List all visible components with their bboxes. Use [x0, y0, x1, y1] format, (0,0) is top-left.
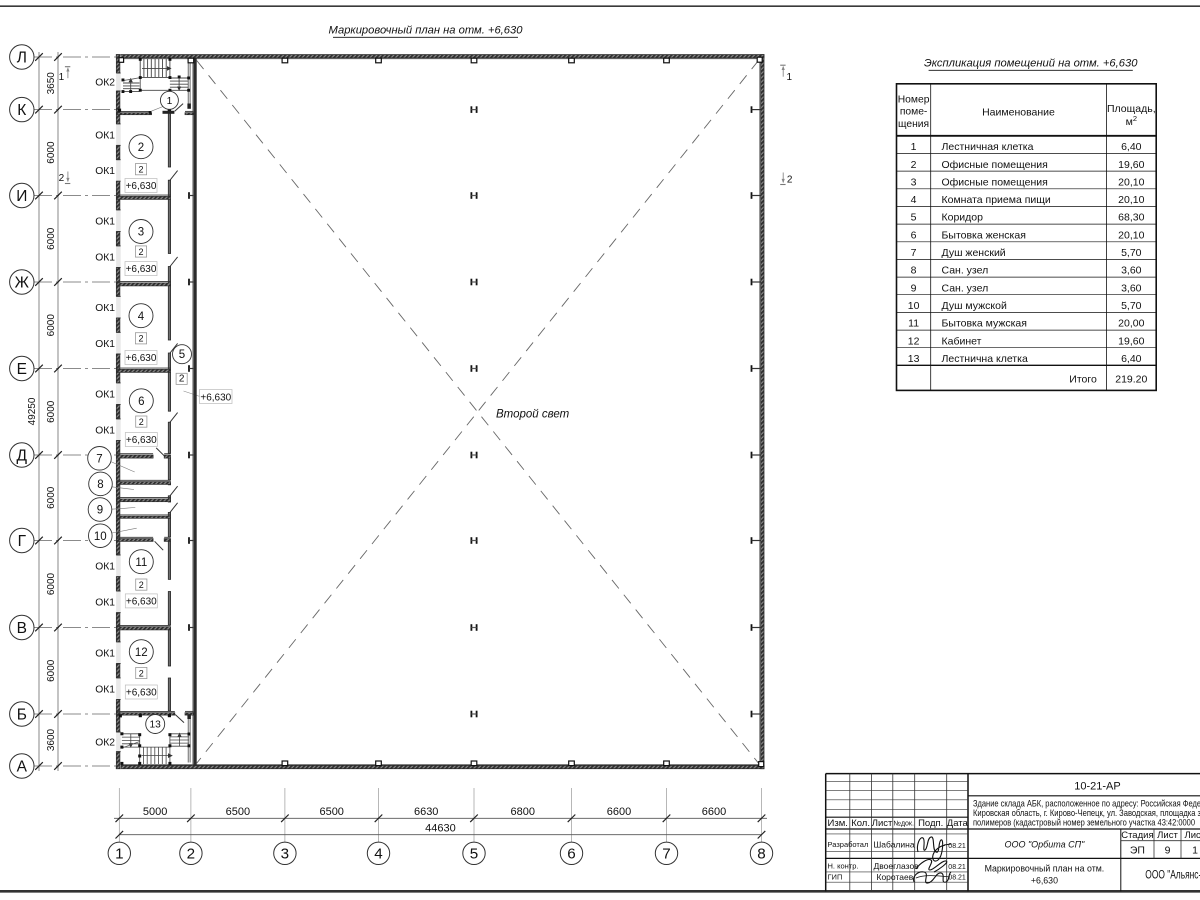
svg-text:10: 10	[94, 531, 107, 543]
svg-text:ООО "Орбита СП": ООО "Орбита СП"	[1004, 840, 1085, 850]
svg-text:ЭП: ЭП	[1130, 845, 1145, 857]
svg-text:5: 5	[911, 212, 917, 224]
svg-text:ОК1: ОК1	[95, 562, 115, 573]
svg-text:2: 2	[138, 142, 144, 154]
svg-text:Офисные помещения: Офисные помещения	[942, 176, 1048, 188]
svg-text:+6,630: +6,630	[126, 264, 157, 275]
svg-text:Коротаев: Коротаев	[877, 872, 914, 882]
svg-text:ОК1: ОК1	[95, 649, 115, 660]
svg-text:Душ женский: Душ женский	[942, 247, 1006, 259]
svg-text:Второй свет: Второй свет	[496, 409, 570, 421]
svg-text:Н. контр.: Н. контр.	[828, 862, 859, 871]
svg-text:Б: Б	[17, 706, 27, 723]
svg-text:Итого: Итого	[1069, 373, 1097, 385]
svg-text:полимеров (кадастровый номер з: полимеров (кадастровый номер земельного …	[973, 818, 1195, 828]
svg-text:13: 13	[908, 353, 920, 365]
svg-text:5,70: 5,70	[1121, 300, 1142, 312]
svg-text:6600: 6600	[702, 806, 726, 818]
svg-text:219.20: 219.20	[1115, 373, 1147, 385]
svg-text:+6,630: +6,630	[1031, 876, 1058, 886]
svg-text:1: 1	[911, 141, 917, 153]
svg-text:6: 6	[138, 396, 144, 408]
svg-text:Лестнична клетка: Лестнична клетка	[942, 353, 1028, 365]
svg-text:ОК1: ОК1	[95, 685, 115, 696]
svg-text:20,10: 20,10	[1118, 229, 1144, 241]
svg-text:№док.: №док.	[893, 820, 914, 827]
svg-text:12: 12	[908, 335, 920, 347]
svg-text:Маркировочный план на отм.: Маркировочный план на отм.	[985, 864, 1105, 874]
svg-text:Сан. узел: Сан. узел	[942, 265, 989, 277]
svg-text:6000: 6000	[46, 659, 57, 682]
svg-text:12: 12	[135, 647, 148, 659]
svg-text:Маркировочный план на отм. +6,: Маркировочный план на отм. +6,630	[329, 25, 524, 37]
svg-text:+6,630: +6,630	[126, 435, 157, 446]
svg-text:1: 1	[1192, 845, 1198, 857]
svg-text:Л: Л	[17, 49, 27, 66]
svg-text:44630: 44630	[425, 822, 456, 834]
svg-text:Двоеглазов: Двоеглазов	[874, 861, 920, 871]
svg-text:2: 2	[787, 175, 793, 186]
svg-text:Г: Г	[18, 533, 27, 550]
svg-text:8: 8	[911, 265, 917, 277]
svg-text:8: 8	[97, 479, 103, 491]
svg-text:Коридор: Коридор	[942, 212, 984, 224]
svg-text:ОК1: ОК1	[95, 426, 115, 437]
svg-text:Офисные помещения: Офисные помещения	[942, 159, 1048, 171]
svg-text:9: 9	[97, 505, 103, 517]
svg-text:3: 3	[138, 227, 144, 239]
svg-text:08.21: 08.21	[948, 875, 966, 882]
svg-text:49250: 49250	[27, 397, 38, 425]
svg-text:11: 11	[135, 557, 147, 569]
svg-text:ОК1: ОК1	[95, 253, 115, 264]
svg-text:8: 8	[757, 846, 765, 863]
svg-text:ОК1: ОК1	[95, 303, 115, 314]
svg-text:+6,630: +6,630	[126, 688, 157, 699]
svg-text:Бытовка женская: Бытовка женская	[942, 229, 1026, 241]
svg-text:3600: 3600	[46, 728, 57, 751]
svg-text:5,70: 5,70	[1121, 247, 1142, 259]
svg-text:3,60: 3,60	[1121, 282, 1142, 294]
svg-text:Лестничная клетка: Лестничная клетка	[942, 141, 1034, 153]
svg-text:5: 5	[179, 349, 185, 361]
svg-text:6500: 6500	[319, 806, 343, 818]
svg-text:Номер: Номер	[898, 94, 930, 105]
svg-text:20,00: 20,00	[1118, 318, 1144, 330]
svg-text:Экспликация помещений на отм.: Экспликация помещений на отм. +6,630	[924, 58, 1138, 70]
svg-text:6000: 6000	[46, 227, 57, 250]
svg-text:ООО "Альянс-П: ООО "Альянс-П	[1145, 870, 1200, 882]
svg-text:20,10: 20,10	[1118, 176, 1144, 188]
svg-text:3: 3	[281, 846, 289, 863]
svg-text:68,30: 68,30	[1118, 212, 1144, 224]
svg-text:3650: 3650	[46, 72, 57, 95]
svg-text:Здание склада АБК, расположенн: Здание склада АБК, расположенное по адре…	[973, 799, 1200, 809]
svg-text:Д: Д	[17, 447, 28, 464]
svg-text:ОК2: ОК2	[95, 78, 115, 89]
svg-text:Наименование: Наименование	[982, 106, 1055, 118]
svg-text:11: 11	[908, 318, 919, 330]
svg-text:1: 1	[59, 72, 65, 83]
svg-text:А: А	[17, 758, 28, 775]
svg-text:Ж: Ж	[15, 274, 30, 291]
svg-text:К: К	[17, 102, 26, 119]
svg-text:+6,630: +6,630	[200, 392, 231, 403]
svg-text:Лист: Лист	[872, 818, 893, 829]
svg-text:Кабинет: Кабинет	[942, 335, 982, 347]
svg-text:ГИП: ГИП	[828, 872, 843, 881]
svg-text:Подп.: Подп.	[918, 818, 943, 829]
svg-text:Изм.: Изм.	[828, 818, 848, 829]
svg-text:4: 4	[374, 846, 382, 863]
svg-text:Сан. узел: Сан. узел	[942, 282, 989, 294]
svg-text:Площадь,: Площадь,	[1107, 103, 1156, 115]
svg-text:19,60: 19,60	[1118, 335, 1144, 347]
svg-text:Шабалина: Шабалина	[874, 840, 915, 850]
svg-text:Дата: Дата	[947, 818, 969, 829]
svg-text:2: 2	[911, 159, 917, 171]
svg-text:1: 1	[167, 96, 173, 107]
svg-text:9: 9	[1165, 845, 1171, 857]
svg-text:19,60: 19,60	[1118, 159, 1144, 171]
svg-text:Е: Е	[17, 361, 27, 378]
svg-text:2: 2	[138, 334, 143, 344]
svg-text:6000: 6000	[46, 400, 57, 423]
svg-text:5000: 5000	[143, 806, 167, 818]
svg-text:1: 1	[787, 72, 793, 83]
svg-text:6000: 6000	[46, 141, 57, 164]
svg-text:2: 2	[139, 668, 144, 678]
svg-text:+6,630: +6,630	[126, 353, 157, 364]
svg-text:6: 6	[567, 846, 575, 863]
svg-text:7: 7	[662, 846, 670, 863]
svg-text:Бытовка мужская: Бытовка мужская	[942, 318, 1027, 330]
svg-text:6630: 6630	[414, 806, 438, 818]
svg-text:2: 2	[179, 374, 185, 385]
svg-text:Комната приема пищи: Комната приема пищи	[942, 194, 1051, 206]
svg-text:7: 7	[96, 453, 102, 465]
svg-text:Душ мужской: Душ мужской	[942, 300, 1007, 312]
svg-text:5: 5	[470, 846, 478, 863]
svg-text:щения: щения	[898, 119, 929, 130]
svg-text:6800: 6800	[511, 806, 535, 818]
svg-text:Листов: Листов	[1185, 830, 1200, 841]
svg-text:ОК1: ОК1	[95, 598, 115, 609]
svg-text:ОК1: ОК1	[95, 390, 115, 401]
svg-text:Кировская область, г. Кирово-Ч: Кировская область, г. Кирово-Чепецк, ул.…	[973, 808, 1200, 818]
svg-text:В: В	[17, 620, 27, 637]
svg-text:6: 6	[911, 229, 917, 241]
svg-text:ОК1: ОК1	[95, 339, 115, 350]
svg-text:3: 3	[911, 176, 917, 188]
svg-text:10-21-АР: 10-21-АР	[1074, 781, 1120, 793]
svg-text:ОК1: ОК1	[95, 131, 115, 142]
svg-text:6,40: 6,40	[1121, 353, 1142, 365]
svg-text:ОК1: ОК1	[95, 166, 115, 177]
svg-text:2: 2	[139, 417, 144, 427]
svg-text:Лист: Лист	[1157, 830, 1178, 841]
svg-text:7: 7	[911, 247, 917, 259]
svg-text:поме-: поме-	[900, 107, 928, 118]
svg-text:Кол.: Кол.	[851, 818, 870, 829]
svg-text:10: 10	[908, 300, 920, 312]
svg-text:08.21: 08.21	[948, 864, 966, 871]
svg-text:ОК2: ОК2	[95, 738, 115, 749]
svg-text:Стадия: Стадия	[1121, 830, 1153, 841]
svg-text:2: 2	[59, 173, 65, 184]
svg-text:6000: 6000	[46, 486, 57, 509]
svg-text:+6,630: +6,630	[126, 181, 157, 192]
svg-text:6500: 6500	[226, 806, 250, 818]
svg-text:6600: 6600	[607, 806, 631, 818]
svg-text:2: 2	[138, 247, 143, 257]
svg-text:4: 4	[911, 194, 917, 206]
svg-text:И: И	[16, 188, 27, 205]
svg-text:20,10: 20,10	[1118, 194, 1144, 206]
svg-text:3,60: 3,60	[1121, 265, 1142, 277]
svg-text:6000: 6000	[46, 572, 57, 595]
svg-text:2: 2	[138, 165, 143, 175]
svg-text:4: 4	[138, 311, 145, 323]
svg-text:ОК1: ОК1	[95, 217, 115, 228]
svg-text:6,40: 6,40	[1121, 141, 1142, 153]
svg-text:13: 13	[150, 720, 162, 731]
svg-text:2: 2	[187, 846, 195, 863]
svg-text:1: 1	[115, 846, 123, 863]
svg-text:2: 2	[139, 580, 144, 590]
svg-text:Разработал: Разработал	[828, 840, 869, 849]
svg-text:6000: 6000	[46, 314, 57, 337]
svg-text:+6,630: +6,630	[126, 597, 157, 608]
svg-text:9: 9	[911, 282, 917, 294]
